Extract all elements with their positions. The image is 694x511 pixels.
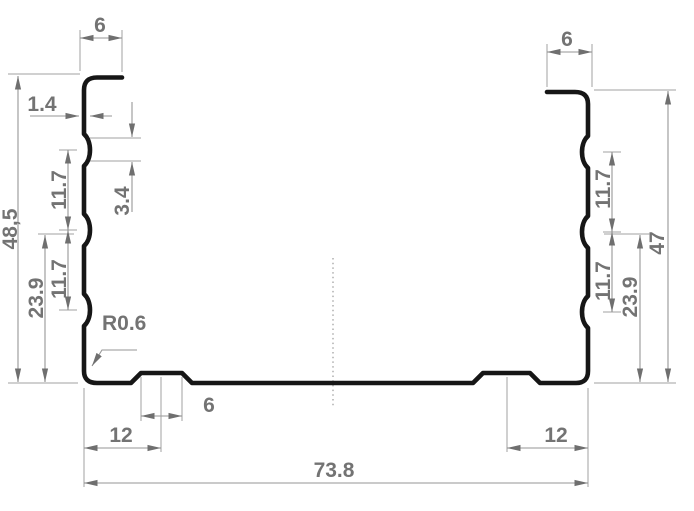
dim-left-bead-spacing: 11.7 11.7 xyxy=(48,150,77,310)
leader-line xyxy=(92,350,137,366)
dim-base-rib-offset-right: 12 xyxy=(507,377,588,487)
dim-top-right-lip: 6 xyxy=(547,28,592,87)
dim-label-right-bead-to-base: 23.9 xyxy=(619,277,642,318)
drawing-canvas: 48,5 23.9 11.7 11.7 6 1.4 3.4 xyxy=(0,0,694,511)
dim-right-bead-spacing: 11.7 11.7 xyxy=(592,152,621,312)
dim-right-bead-to-base: 23.9 xyxy=(604,234,650,382)
dim-label-bead-height: 3.4 xyxy=(111,186,134,216)
dim-base-rib-offset-left: 12 xyxy=(84,377,161,487)
dim-label-base-rib-offset-right: 12 xyxy=(544,424,567,447)
profile-outline xyxy=(84,78,588,384)
dim-label-right-bead-spacing-lower: 11.7 xyxy=(592,261,615,301)
dim-label-right-bead-spacing-upper: 11.7 xyxy=(592,169,615,209)
dim-label-base-rib-offset-left: 12 xyxy=(109,424,132,447)
dim-label-base-rib-width: 6 xyxy=(203,394,215,417)
dim-label-left-bead-spacing-lower: 11.7 xyxy=(48,259,71,299)
dim-label-overall-width: 73.8 xyxy=(314,459,355,482)
dim-label-overall-height-left: 48,5 xyxy=(0,208,22,249)
dim-material-thickness: 1.4 xyxy=(27,93,112,116)
dim-top-left-lip: 6 xyxy=(80,14,122,72)
dim-overall-width: 73.8 xyxy=(84,459,588,483)
dim-label-left-bead-spacing-upper: 11.7 xyxy=(48,170,71,210)
dim-label-corner-radius: R0.6 xyxy=(102,312,146,335)
dim-overall-height-right: 47 xyxy=(594,90,676,383)
radius-callout: R0.6 xyxy=(92,312,146,366)
dim-label-left-bead-to-base: 23.9 xyxy=(25,278,48,319)
dim-label-top-right-lip: 6 xyxy=(561,28,573,51)
dim-left-bead-to-base: 23.9 xyxy=(25,234,74,382)
technical-drawing: 48,5 23.9 11.7 11.7 6 1.4 3.4 xyxy=(0,0,694,511)
dim-label-top-left-lip: 6 xyxy=(94,14,106,37)
dim-bead-height: 3.4 xyxy=(90,102,141,216)
dim-label-overall-height-right: 47 xyxy=(646,231,669,254)
dim-label-material-thickness: 1.4 xyxy=(27,93,57,116)
